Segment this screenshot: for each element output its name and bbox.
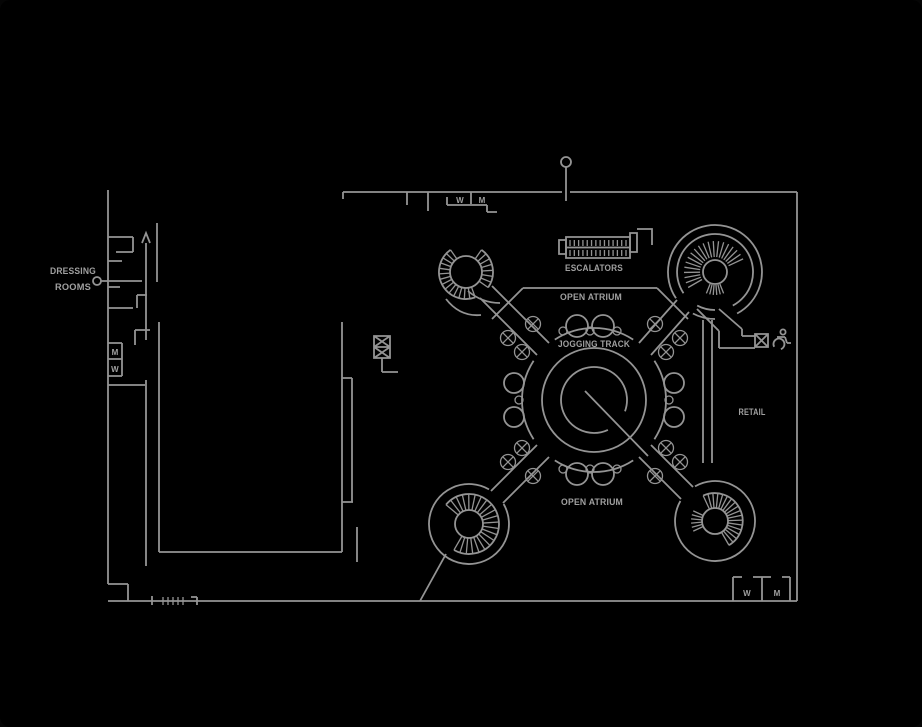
spiral-stair-top-right	[668, 225, 762, 319]
spiral-stair-top-left	[439, 250, 500, 315]
spiral-stair-bottom-left	[420, 484, 509, 601]
retail-label: RETAIL	[739, 407, 766, 417]
upper-restroom-w-label: W	[456, 196, 464, 205]
dressing-rooms-walls	[93, 223, 157, 566]
upper-restroom-m-label: M	[479, 196, 486, 205]
wheelchair-icon	[773, 329, 791, 349]
center-court-symbol	[561, 367, 648, 456]
bottom-right-restroom-m-label: M	[774, 589, 781, 598]
dressing-rooms-label-line2: ROOMS	[55, 282, 91, 292]
dressing-rooms-label-line1: DRESSING	[50, 266, 96, 276]
shaft-symbol	[374, 336, 398, 372]
bottom-right-restroom-walls	[733, 577, 790, 601]
left-restroom-w-label: W	[111, 365, 119, 374]
open-atrium-bottom-label: OPEN ATRIUM	[561, 497, 623, 507]
elevator-symbol	[755, 334, 768, 347]
spiral-stair-bottom-right	[675, 481, 755, 561]
jogging-track-label: JOGGING TRACK	[558, 339, 630, 349]
elevator-corridor	[697, 309, 755, 348]
escalator-symbol	[559, 229, 652, 258]
floor-plan-canvas: W M ESCALATORS OPEN ATRIUM JOGGING T	[0, 0, 922, 727]
left-wing-hall-walls	[159, 322, 357, 562]
escalators-label: ESCALATORS	[565, 263, 623, 273]
bottom-right-restroom-w-label: W	[743, 589, 751, 598]
retail-walls	[703, 320, 712, 463]
floor-plan: W M ESCALATORS OPEN ATRIUM JOGGING T	[0, 0, 922, 727]
left-restroom-m-label: M	[112, 348, 119, 357]
column-marker	[561, 157, 571, 201]
open-atrium-top-label: OPEN ATRIUM	[560, 292, 622, 302]
